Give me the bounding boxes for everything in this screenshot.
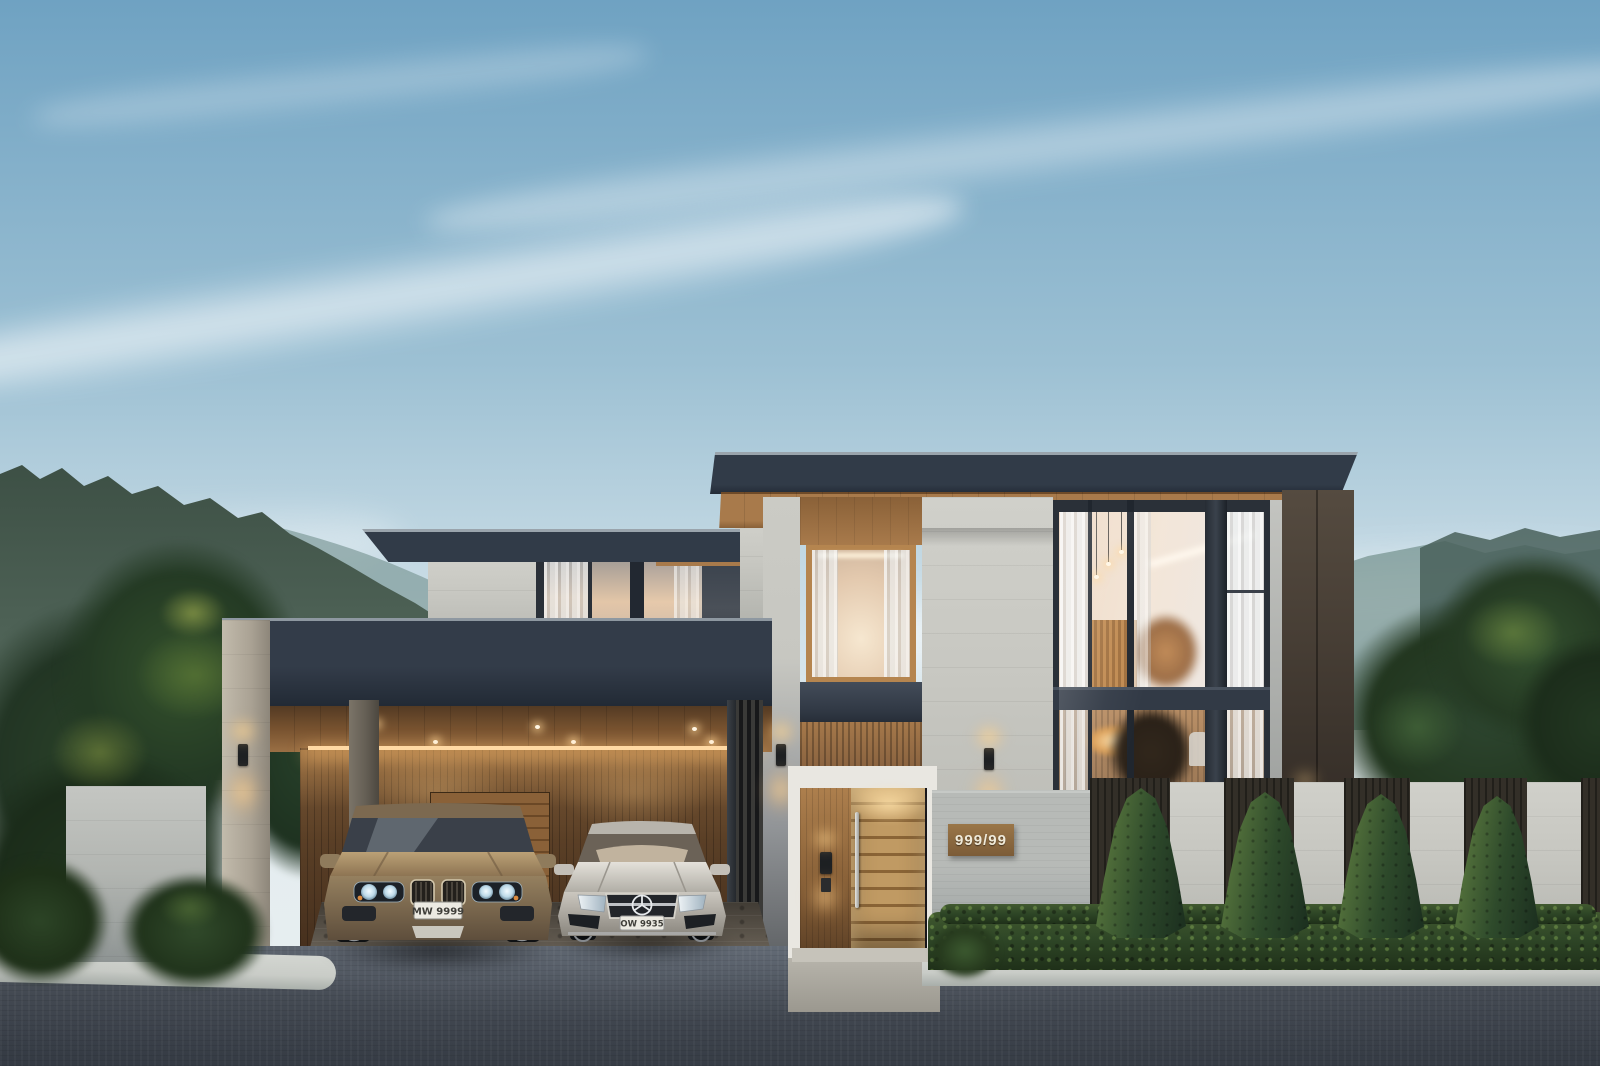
sedan-chrome-lip <box>568 932 716 935</box>
door-threshold <box>792 948 933 962</box>
door-keypad <box>821 878 831 892</box>
entry-window-curtain <box>884 550 910 677</box>
column-soffit-shadow <box>922 528 1053 546</box>
recessed-downlight <box>433 740 438 744</box>
sedan-mirror <box>710 864 730 875</box>
sedan-headlight <box>578 895 606 912</box>
recessed-downlight <box>692 727 697 731</box>
tree-highlight <box>1448 585 1578 680</box>
sedan-interior-seats <box>596 845 688 862</box>
tree-highlight <box>1355 672 1480 782</box>
suv-hood <box>330 852 546 876</box>
sedan-plate-text: OW 9935 <box>620 920 663 930</box>
sconce-uplight-glow <box>810 826 840 852</box>
recessed-downlight <box>571 740 576 744</box>
sedan-headlight <box>678 895 706 912</box>
door-sconce <box>820 852 832 874</box>
suv-skid-plate <box>412 926 464 938</box>
suv-plate-text: MW 9999 <box>412 907 464 918</box>
entry-window-curtain <box>812 550 838 677</box>
sedan-grille <box>606 894 678 918</box>
sedan-roof <box>588 821 696 834</box>
suv-headlight <box>354 882 404 902</box>
bronze-cladding-panel <box>1282 490 1354 820</box>
sconce-downlight-glow <box>223 766 263 818</box>
wall-sconce <box>238 744 248 766</box>
door-downlight-glow <box>850 784 928 824</box>
recessed-downlight <box>535 725 540 729</box>
sedan-hood <box>564 862 720 892</box>
sedan-mirror <box>554 864 574 875</box>
entry-window <box>806 545 916 682</box>
suv-license-plate: MW 9999 <box>412 902 464 919</box>
recessed-downlight <box>709 740 714 744</box>
house-number-plaque: 999/99 <box>948 824 1014 856</box>
sconce-uplight-glow <box>226 716 260 746</box>
entry-wood-slat-band <box>800 722 922 768</box>
carport-fascia <box>222 618 772 706</box>
sedan-license-plate: OW 9935 <box>620 916 664 930</box>
suv-headlight <box>472 882 522 902</box>
sconce-uplight-glow <box>972 722 1006 752</box>
wall-sconce <box>776 744 786 766</box>
suv-fog-insert <box>342 906 376 921</box>
suv-fog-insert <box>500 906 534 921</box>
main-roof <box>710 452 1358 494</box>
entry-window-soffit <box>800 497 922 545</box>
house-number-text: 999/99 <box>955 832 1007 849</box>
champagne-suv: MW 9999 <box>318 800 558 950</box>
entrance-portal <box>788 766 937 958</box>
front-bush-highlight <box>150 880 230 936</box>
fence-slat-panel <box>1581 778 1600 914</box>
door-corner-shrub <box>930 922 1000 980</box>
sconce-uplight-glow <box>764 717 798 747</box>
dusk-house-exterior-scene: 999/99 <box>0 0 1600 1066</box>
door-handle <box>855 812 859 908</box>
carport-ceiling <box>268 700 772 752</box>
silver-sedan: OW 9935 <box>548 820 736 944</box>
entry-steel-band <box>800 682 922 722</box>
suv-roof <box>352 803 524 818</box>
left-wing-roof <box>362 529 740 562</box>
